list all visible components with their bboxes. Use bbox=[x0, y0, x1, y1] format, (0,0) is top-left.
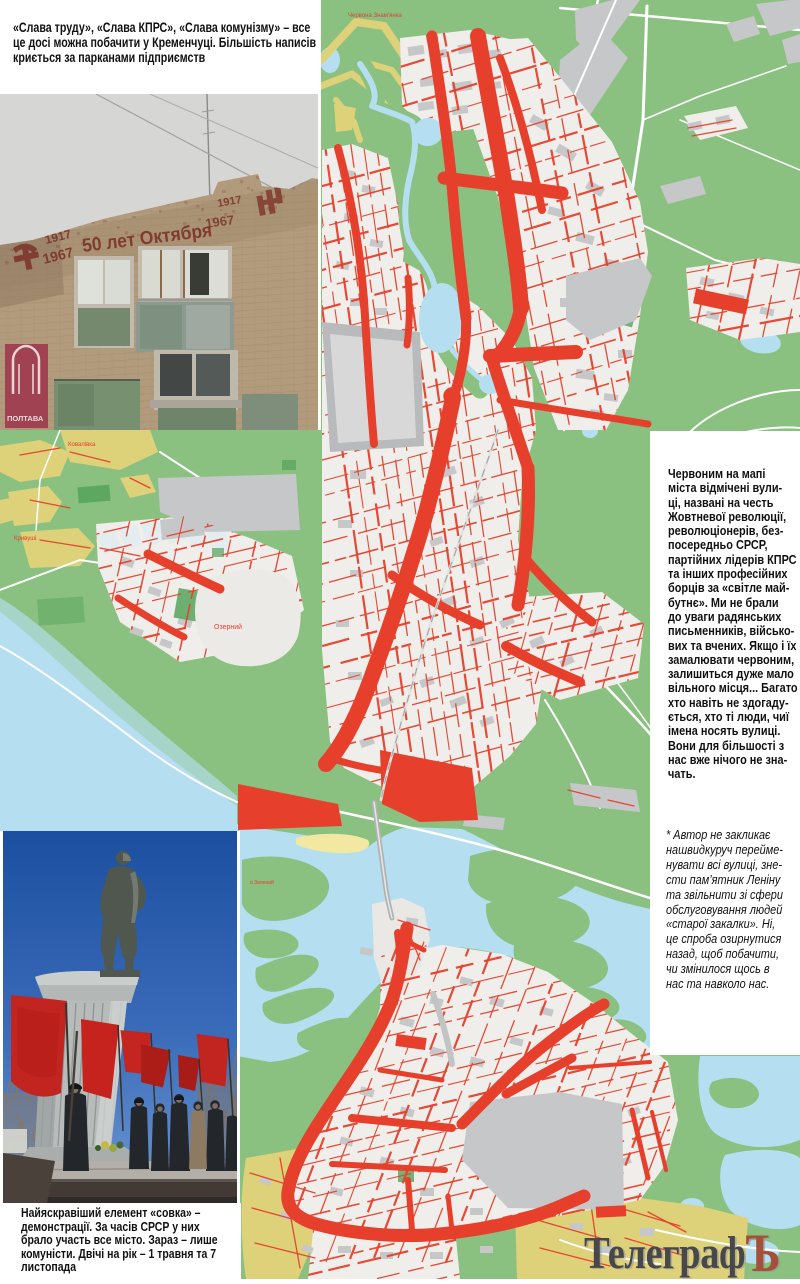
svg-text:ПОЛТАВА: ПОЛТАВА bbox=[7, 414, 44, 423]
svg-text:Озерний: Озерний bbox=[214, 623, 242, 631]
svg-text:Кривуші: Кривуші bbox=[14, 536, 36, 542]
svg-text:о.Зелений: о.Зелений bbox=[250, 879, 274, 886]
svg-text:Ковалівка: Ковалівка bbox=[68, 442, 96, 448]
svg-text:Червона Знам’янка: Червона Знам’янка bbox=[348, 13, 402, 19]
